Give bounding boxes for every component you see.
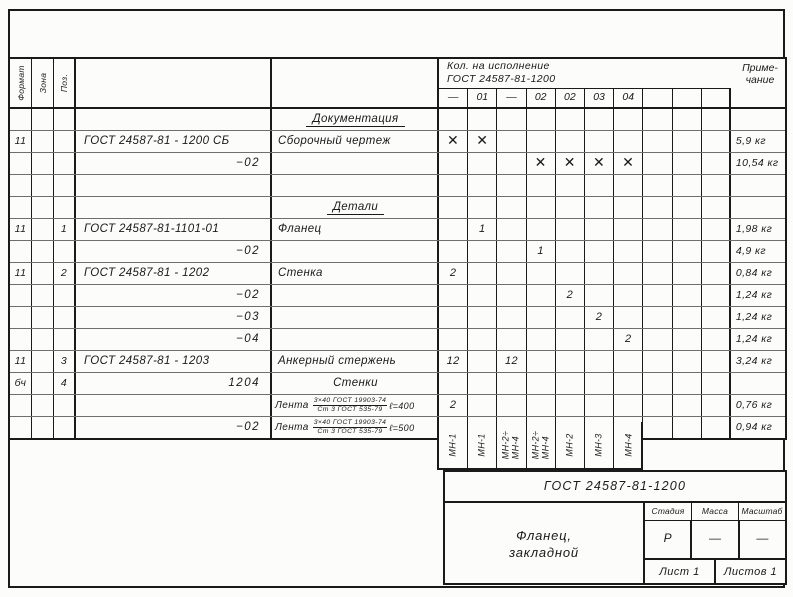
qty-cell (468, 109, 497, 130)
stage-value: Р (645, 521, 692, 558)
qty-cell (497, 241, 526, 262)
qty-column-header: 04 (614, 89, 643, 107)
qty-cell (556, 197, 585, 218)
qty-cell: 12 (497, 351, 526, 372)
qty-cell (556, 351, 585, 372)
qty-cell (468, 395, 497, 416)
note-cell: 0,84 кг (731, 263, 789, 284)
qty-cell (468, 351, 497, 372)
pos-cell: 4 (54, 373, 76, 394)
pos-cell (54, 417, 76, 438)
qty-cell (702, 373, 731, 394)
pos-cell (54, 241, 76, 262)
format-cell (10, 417, 32, 438)
title-block-main: Фланец, закладной Стадия Масса Масштаб Р… (445, 503, 785, 584)
qty-cell (702, 109, 731, 130)
designation-cell: ГОСТ 24587-81-1101-01 (76, 219, 272, 240)
mn-label: МН-4 (624, 433, 634, 456)
table-row: −02✕✕✕✕10,54 кг (10, 153, 785, 175)
qty-cell (614, 175, 643, 196)
table-row: 113ГОСТ 24587-81 - 1203Анкерный стержень… (10, 351, 785, 373)
section-title: Документация (306, 113, 404, 127)
pos-cell (54, 175, 76, 196)
designation-cell: −03 (76, 307, 272, 328)
format-cell (10, 307, 32, 328)
title-block-labels: Стадия Масса Масштаб (645, 503, 785, 521)
scale-value: — (740, 521, 785, 558)
name-cell (272, 285, 439, 306)
zone-cell (32, 417, 54, 438)
name-cell: Стенка (272, 263, 439, 284)
qty-cell (643, 197, 672, 218)
name-cell (272, 153, 439, 174)
note-cell (731, 197, 789, 218)
qty-cell (702, 219, 731, 240)
mn-cell: МН-2÷МН-4 (527, 422, 556, 468)
qty-cell (643, 241, 672, 262)
qty-cell: ✕ (585, 153, 614, 174)
qty-cell (702, 241, 731, 262)
note-cell: 1,98 кг (731, 219, 789, 240)
qty-cell (556, 263, 585, 284)
qty-cell (643, 351, 672, 372)
qty-cell (497, 109, 526, 130)
qty-cell (673, 153, 702, 174)
format-cell (10, 241, 32, 262)
format-cell (10, 285, 32, 306)
zone-cell (32, 395, 54, 416)
qty-cell (614, 285, 643, 306)
mn-label: МН-3 (594, 433, 604, 456)
pos-cell (54, 395, 76, 416)
qty-cell (527, 329, 556, 350)
qty-cell (497, 329, 526, 350)
qty-subheader-row: —01—02020304 (439, 89, 731, 107)
qty-cell (673, 109, 702, 130)
zone-cell (32, 241, 54, 262)
name-cell: Фланец (272, 219, 439, 240)
qty-cell (556, 241, 585, 262)
qty-cell (585, 197, 614, 218)
zone-cell (32, 373, 54, 394)
table-row: 111ГОСТ 24587-81-1101-01Фланец11,98 кг (10, 219, 785, 241)
qty-cell (439, 219, 468, 240)
sheet-number: Лист 1 (645, 560, 716, 584)
format-cell (10, 153, 32, 174)
note-cell: 5,9 кг (731, 131, 789, 152)
qty-cell: ✕ (556, 153, 585, 174)
qty-cell (468, 285, 497, 306)
qty-cell (643, 373, 672, 394)
qty-cell (527, 131, 556, 152)
document-number: ГОСТ 24587-81-1200 (445, 472, 785, 503)
material-denominator: Ст 3 ГОСТ 535-79 (313, 406, 388, 414)
note-label-line1: Приме- (731, 62, 789, 74)
qty-cell (527, 373, 556, 394)
qty-cell (614, 351, 643, 372)
qty-cell (585, 263, 614, 284)
qty-cell (673, 175, 702, 196)
format-cell (10, 395, 32, 416)
qty-cell (439, 197, 468, 218)
designation-column-header (76, 59, 272, 107)
qty-cell (673, 329, 702, 350)
zone-column-label: Зона (38, 73, 48, 94)
pos-cell (54, 131, 76, 152)
designation-cell: −02 (76, 417, 272, 438)
table-row: 112ГОСТ 24587-81 - 1202Стенка20,84 кг (10, 263, 785, 285)
qty-cell (614, 263, 643, 284)
qty-cell (468, 197, 497, 218)
zone-column-header: Зона (32, 59, 54, 107)
qty-cell: 12 (439, 351, 468, 372)
qty-cell (673, 307, 702, 328)
qty-cell (643, 153, 672, 174)
name-cell (272, 175, 439, 196)
name-cell: Сборочный чертеж (272, 131, 439, 152)
note-cell: 3,24 кг (731, 351, 789, 372)
format-cell (10, 109, 32, 130)
qty-cell (468, 175, 497, 196)
note-cell: 1,24 кг (731, 307, 789, 328)
qty-cell (702, 395, 731, 416)
table-row: 11ГОСТ 24587-81 - 1200 СБСборочный черте… (10, 131, 785, 153)
qty-cell (527, 285, 556, 306)
qty-cell (614, 241, 643, 262)
qty-cell (527, 175, 556, 196)
qty-cell (439, 329, 468, 350)
mn-cell: МН-1 (468, 422, 497, 468)
name-cell (272, 307, 439, 328)
mn-label: МН-1 (448, 433, 458, 456)
qty-cell (439, 175, 468, 196)
qty-cell (614, 131, 643, 152)
designation-cell: −02 (76, 241, 272, 262)
qty-cell (643, 219, 672, 240)
qty-cell: ✕ (527, 153, 556, 174)
designation-cell: ГОСТ 24587-81 - 1202 (76, 263, 272, 284)
name-cell: Лента3×40 ГОСТ 19903-74Ст 3 ГОСТ 535-79ℓ… (272, 395, 439, 416)
note-cell: 10,54 кг (731, 153, 789, 174)
qty-column-header: 02 (527, 89, 556, 107)
material-fraction: 3×40 ГОСТ 19903-74Ст 3 ГОСТ 535-79 (313, 397, 388, 414)
qty-cell (702, 197, 731, 218)
table-row: −02Лента3×40 ГОСТ 19903-74Ст 3 ГОСТ 535-… (10, 417, 785, 438)
qty-group-header: Кол. на исполнение ГОСТ 24587-81-1200 —0… (439, 59, 731, 107)
qty-cell (439, 373, 468, 394)
zone-cell (32, 263, 54, 284)
material-prefix: Лента (275, 418, 309, 438)
qty-cell (497, 285, 526, 306)
qty-cell (614, 219, 643, 240)
qty-cell (614, 373, 643, 394)
qty-cell (673, 373, 702, 394)
qty-cell (673, 131, 702, 152)
qty-cell (585, 175, 614, 196)
qty-cell (585, 395, 614, 416)
qty-group-title-line1: Кол. на исполнение (447, 60, 731, 73)
material-numerator: 3×40 ГОСТ 19903-74 (313, 397, 388, 406)
mn-label: МН-2÷МН-4 (502, 431, 521, 459)
qty-cell (614, 109, 643, 130)
qty-cell (527, 109, 556, 130)
qty-cell (527, 395, 556, 416)
note-cell: 1,24 кг (731, 285, 789, 306)
qty-cell (673, 241, 702, 262)
scale-label: Масштаб (739, 503, 785, 520)
designation-cell: ГОСТ 24587-81 - 1200 СБ (76, 131, 272, 152)
name-column-header (272, 59, 439, 107)
qty-cell (556, 373, 585, 394)
pos-cell (54, 307, 76, 328)
note-cell: 0,76 кг (731, 395, 789, 416)
qty-cell (497, 307, 526, 328)
format-cell: 11 (10, 131, 32, 152)
part-name-line1: Фланец, (516, 527, 572, 544)
qty-cell (673, 351, 702, 372)
format-cell: 11 (10, 263, 32, 284)
part-name: Фланец, закладной (445, 503, 645, 584)
zone-cell (32, 351, 54, 372)
qty-cell (643, 285, 672, 306)
designation-cell (76, 175, 272, 196)
pos-cell: 3 (54, 351, 76, 372)
qty-cell (702, 307, 731, 328)
qty-cell: 2 (439, 263, 468, 284)
qty-cell (527, 197, 556, 218)
qty-cell (556, 329, 585, 350)
mn-cell: МН-3 (585, 422, 614, 468)
format-cell: 11 (10, 219, 32, 240)
table-row: −0421,24 кг (10, 329, 785, 351)
mn-label: МН-1 (478, 433, 488, 456)
mass-label: Масса (692, 503, 739, 520)
pos-cell: 2 (54, 263, 76, 284)
zone-cell (32, 175, 54, 196)
table-row: −0221,24 кг (10, 285, 785, 307)
name-cell: Лента3×40 ГОСТ 19903-74Ст 3 ГОСТ 535-79ℓ… (272, 417, 439, 438)
mass-value: — (692, 521, 739, 558)
name-cell (272, 241, 439, 262)
qty-cell (702, 351, 731, 372)
note-cell: 0,94 кг (731, 417, 789, 438)
qty-cell (468, 153, 497, 174)
qty-cell (527, 263, 556, 284)
zone-cell (32, 307, 54, 328)
designation-cell: −02 (76, 285, 272, 306)
qty-cell (497, 131, 526, 152)
qty-cell (702, 131, 731, 152)
qty-cell (468, 329, 497, 350)
name-cell (272, 329, 439, 350)
material-fraction: 3×40 ГОСТ 19903-74Ст 3 ГОСТ 535-79 (313, 419, 388, 436)
table-row: Детали (10, 197, 785, 219)
table-row: Документация (10, 109, 785, 131)
format-cell: 11 (10, 351, 32, 372)
pos-cell (54, 197, 76, 218)
qty-cell (556, 175, 585, 196)
qty-column-header (702, 89, 731, 107)
qty-column-header (673, 89, 702, 107)
qty-cell (614, 395, 643, 416)
note-cell: 1,24 кг (731, 329, 789, 350)
qty-cell (468, 263, 497, 284)
qty-cell (643, 307, 672, 328)
qty-cell (439, 285, 468, 306)
qty-cell (497, 263, 526, 284)
table-header: Формат Зона Поз. Кол. на исполнение ГОСТ… (10, 59, 785, 109)
qty-cell (673, 285, 702, 306)
name-cell: Детали (272, 197, 439, 218)
qty-cell (497, 153, 526, 174)
qty-cell (702, 153, 731, 174)
zone-cell (32, 285, 54, 306)
qty-cell (468, 241, 497, 262)
pos-column-header: Поз. (54, 59, 76, 107)
qty-cell (556, 395, 585, 416)
stage-label: Стадия (645, 503, 692, 520)
note-cell (731, 109, 789, 130)
format-cell (10, 197, 32, 218)
qty-column-header: 02 (556, 89, 585, 107)
qty-cell (585, 219, 614, 240)
qty-cell (643, 175, 672, 196)
designation-cell: ГОСТ 24587-81 - 1203 (76, 351, 272, 372)
material-length: ℓ=400 (389, 396, 414, 416)
format-cell (10, 329, 32, 350)
qty-group-title: Кол. на исполнение ГОСТ 24587-81-1200 (439, 59, 731, 89)
qty-cell (702, 329, 731, 350)
pos-cell (54, 153, 76, 174)
designation-cell: −02 (76, 153, 272, 174)
mn-cell: МН-2÷МН-4 (497, 422, 526, 468)
qty-cell (527, 307, 556, 328)
qty-cell (585, 373, 614, 394)
table-body: Документация11ГОСТ 24587-81 - 1200 СБСбо… (10, 109, 785, 438)
qty-cell (673, 417, 702, 438)
qty-cell (673, 197, 702, 218)
designation-cell (76, 197, 272, 218)
qty-column-header: 03 (585, 89, 614, 107)
zone-cell (32, 329, 54, 350)
name-cell: Документация (272, 109, 439, 130)
qty-cell (439, 307, 468, 328)
qty-cell (497, 197, 526, 218)
qty-cell (556, 109, 585, 130)
qty-column-header: 01 (468, 89, 497, 107)
format-column-header: Формат (10, 59, 32, 107)
table-row: −0214,9 кг (10, 241, 785, 263)
pos-column-label: Поз. (59, 74, 69, 92)
qty-cell (643, 109, 672, 130)
title-block-right: Стадия Масса Масштаб Р — — Лист 1 Листов… (645, 503, 785, 584)
pos-cell (54, 285, 76, 306)
material-denominator: Ст 3 ГОСТ 535-79 (313, 428, 388, 436)
qty-cell: ✕ (614, 153, 643, 174)
specification-sheet: Формат Зона Поз. Кол. на исполнение ГОСТ… (0, 0, 793, 597)
mn-label: МН-2 (565, 433, 575, 456)
qty-cell (585, 329, 614, 350)
qty-cell: ✕ (468, 131, 497, 152)
qty-cell: 2 (439, 395, 468, 416)
qty-cell (497, 175, 526, 196)
name-cell: Стенки (272, 373, 439, 394)
qty-cell (702, 175, 731, 196)
note-cell: 4,9 кг (731, 241, 789, 262)
qty-cell (643, 329, 672, 350)
qty-cell (497, 395, 526, 416)
zone-cell (32, 197, 54, 218)
sheet-count: Листов 1 (716, 560, 785, 584)
qty-group-title-line2: ГОСТ 24587-81-1200 (447, 73, 731, 86)
qty-column-header: — (439, 89, 468, 107)
material-numerator: 3×40 ГОСТ 19903-74 (313, 419, 388, 428)
qty-cell (439, 241, 468, 262)
note-label-line2: чание (731, 74, 789, 86)
qty-cell (673, 263, 702, 284)
title-block: ГОСТ 24587-81-1200 Фланец, закладной Ста… (443, 470, 787, 585)
qty-cell (585, 285, 614, 306)
qty-cell: 2 (585, 307, 614, 328)
qty-cell: 1 (468, 219, 497, 240)
zone-cell (32, 153, 54, 174)
designation-cell: −04 (76, 329, 272, 350)
qty-cell: 2 (556, 285, 585, 306)
table-row: Лента3×40 ГОСТ 19903-74Ст 3 ГОСТ 535-79ℓ… (10, 395, 785, 417)
qty-cell (556, 307, 585, 328)
qty-cell (702, 417, 731, 438)
mn-label: МН-2÷МН-4 (531, 431, 550, 459)
qty-cell (468, 307, 497, 328)
designation-cell (76, 109, 272, 130)
qty-cell (556, 219, 585, 240)
mn-cell: МН-2 (556, 422, 585, 468)
table-row: бч41204Стенки (10, 373, 785, 395)
qty-cell (702, 263, 731, 284)
material-prefix: Лента (275, 396, 309, 416)
table-row (10, 175, 785, 197)
qty-cell (643, 263, 672, 284)
format-cell: бч (10, 373, 32, 394)
mn-designation-strip: МН-1МН-1МН-2÷МН-4МН-2÷МН-4МН-2МН-3МН-4 (437, 422, 643, 470)
qty-cell (585, 351, 614, 372)
qty-cell: 2 (614, 329, 643, 350)
qty-cell (468, 373, 497, 394)
mn-cell: МН-1 (439, 422, 468, 468)
pos-cell: 1 (54, 219, 76, 240)
note-cell (731, 175, 789, 196)
qty-cell (673, 219, 702, 240)
table-row: −0321,24 кг (10, 307, 785, 329)
qty-cell (585, 241, 614, 262)
qty-cell (527, 351, 556, 372)
qty-cell: ✕ (439, 131, 468, 152)
pos-cell (54, 109, 76, 130)
format-cell (10, 175, 32, 196)
qty-cell (497, 219, 526, 240)
qty-cell (643, 417, 672, 438)
format-column-label: Формат (16, 65, 26, 101)
qty-cell (614, 197, 643, 218)
note-column-header: Приме- чание (731, 59, 789, 107)
part-name-line2: закладной (509, 544, 579, 561)
qty-cell (439, 109, 468, 130)
qty-cell (497, 373, 526, 394)
zone-cell (32, 109, 54, 130)
name-cell: Анкерный стержень (272, 351, 439, 372)
qty-cell (527, 219, 556, 240)
section-title: Детали (327, 201, 384, 215)
